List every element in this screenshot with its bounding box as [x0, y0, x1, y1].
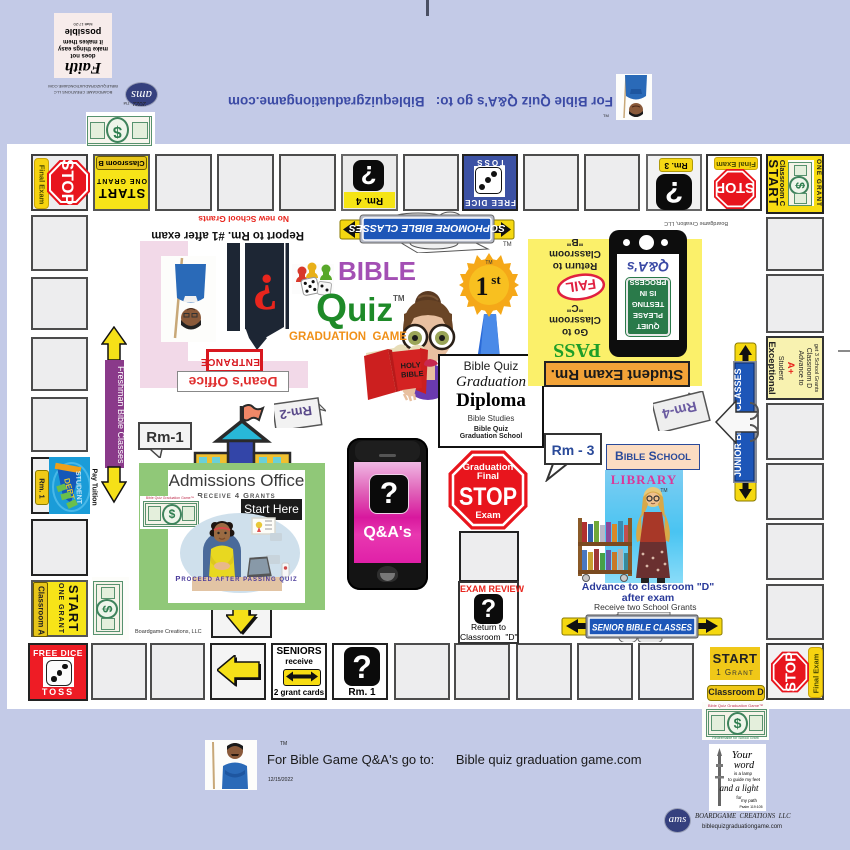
- svg-text:my path: my path: [741, 798, 758, 803]
- svg-text:Student: Student: [777, 356, 784, 380]
- svg-text:Final: Final: [477, 471, 499, 482]
- svg-text:STOP: STOP: [715, 179, 755, 195]
- svg-text:A+: A+: [785, 362, 796, 375]
- svg-text:st: st: [491, 272, 501, 287]
- svg-text:TM: TM: [485, 260, 492, 266]
- svg-text:Classroom D: Classroom D: [805, 348, 812, 388]
- svg-text:STOP: STOP: [58, 160, 77, 205]
- svg-text:STOP: STOP: [459, 483, 517, 511]
- svg-text:to guide my feet: to guide my feet: [728, 777, 761, 782]
- svg-text:STOP: STOP: [784, 652, 800, 692]
- svg-text:BIBLE: BIBLE: [401, 369, 424, 380]
- svg-text:Exceptional: Exceptional: [768, 341, 777, 394]
- svg-text:SOPHOMORE BIBLE CLASSES: SOPHOMORE BIBLE CLASSES: [349, 222, 505, 234]
- svg-text:1: 1: [476, 272, 489, 301]
- svg-text:Advance to: Advance to: [797, 350, 804, 385]
- svg-text:and a light: and a light: [719, 783, 759, 793]
- svg-text:SENIOR BIBLE CLASSES: SENIOR BIBLE CLASSES: [592, 623, 693, 634]
- svg-text:?: ?: [252, 263, 278, 320]
- svg-text:Freshman Bible Classes: Freshman Bible Classes: [116, 366, 126, 464]
- svg-text:Psalm 119:105: Psalm 119:105: [739, 805, 762, 809]
- svg-text:Exam: Exam: [475, 510, 500, 521]
- svg-text:Rm-1: Rm-1: [146, 429, 184, 446]
- svg-text:Rm - 3: Rm - 3: [552, 442, 595, 458]
- svg-text:get 3 School Grants: get 3 School Grants: [813, 344, 819, 393]
